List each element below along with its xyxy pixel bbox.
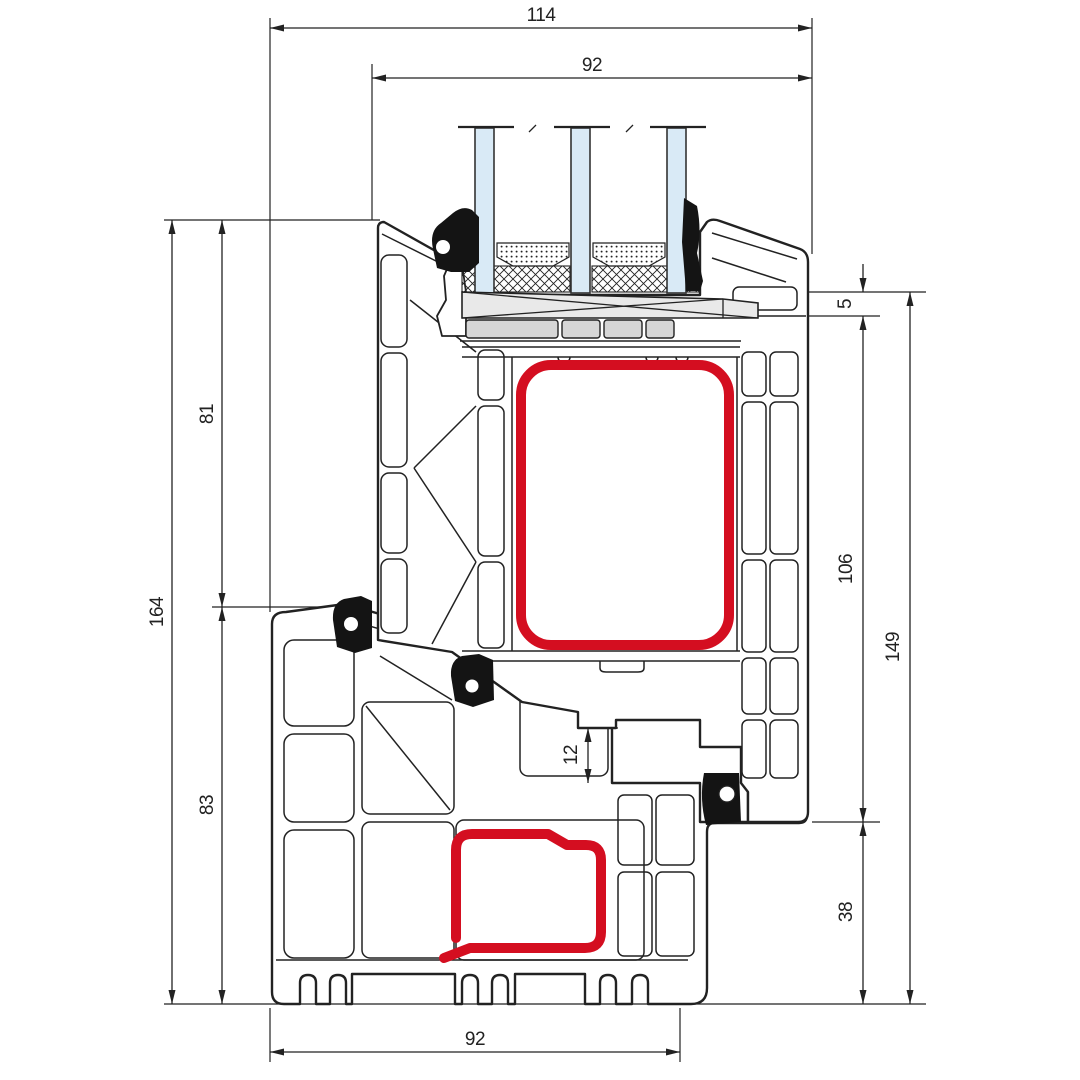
dim-glass-edge-step: 5 bbox=[835, 299, 856, 309]
glass-pane-2 bbox=[571, 128, 590, 293]
rebate-gasket-roller bbox=[719, 786, 735, 802]
dim-overall-width: 114 bbox=[527, 5, 557, 26]
dim-sash-width: 92 bbox=[582, 55, 602, 76]
glazing-gasket-left bbox=[432, 208, 479, 272]
dim-sash-side-height: 106 bbox=[836, 554, 857, 584]
glass-pane-3 bbox=[667, 128, 686, 293]
window-profile-drawing: 114 92 92 164 81 83 5 106 149 38 12 bbox=[0, 0, 1080, 1080]
glass-pane-1 bbox=[475, 128, 494, 293]
dim-overall-height-right: 149 bbox=[883, 632, 904, 662]
spacer-desiccant-left bbox=[497, 243, 569, 266]
frame-gasket-outer-hole bbox=[344, 617, 358, 631]
dim-overall-height-left: 164 bbox=[147, 596, 168, 627]
spacer-desiccant-right bbox=[593, 243, 665, 266]
gasket-clip-hole-left bbox=[436, 240, 450, 254]
dim-frame-width: 92 bbox=[465, 1029, 485, 1050]
dim-upper-height: 81 bbox=[197, 404, 218, 424]
center-gasket-hole bbox=[466, 680, 479, 693]
dim-rebate-gap: 12 bbox=[561, 745, 582, 765]
cross-section-svg: 114 92 92 164 81 83 5 106 149 38 12 bbox=[0, 0, 1080, 1080]
dim-frame-lower-height: 38 bbox=[836, 902, 857, 922]
dim-lower-height: 83 bbox=[197, 795, 218, 815]
